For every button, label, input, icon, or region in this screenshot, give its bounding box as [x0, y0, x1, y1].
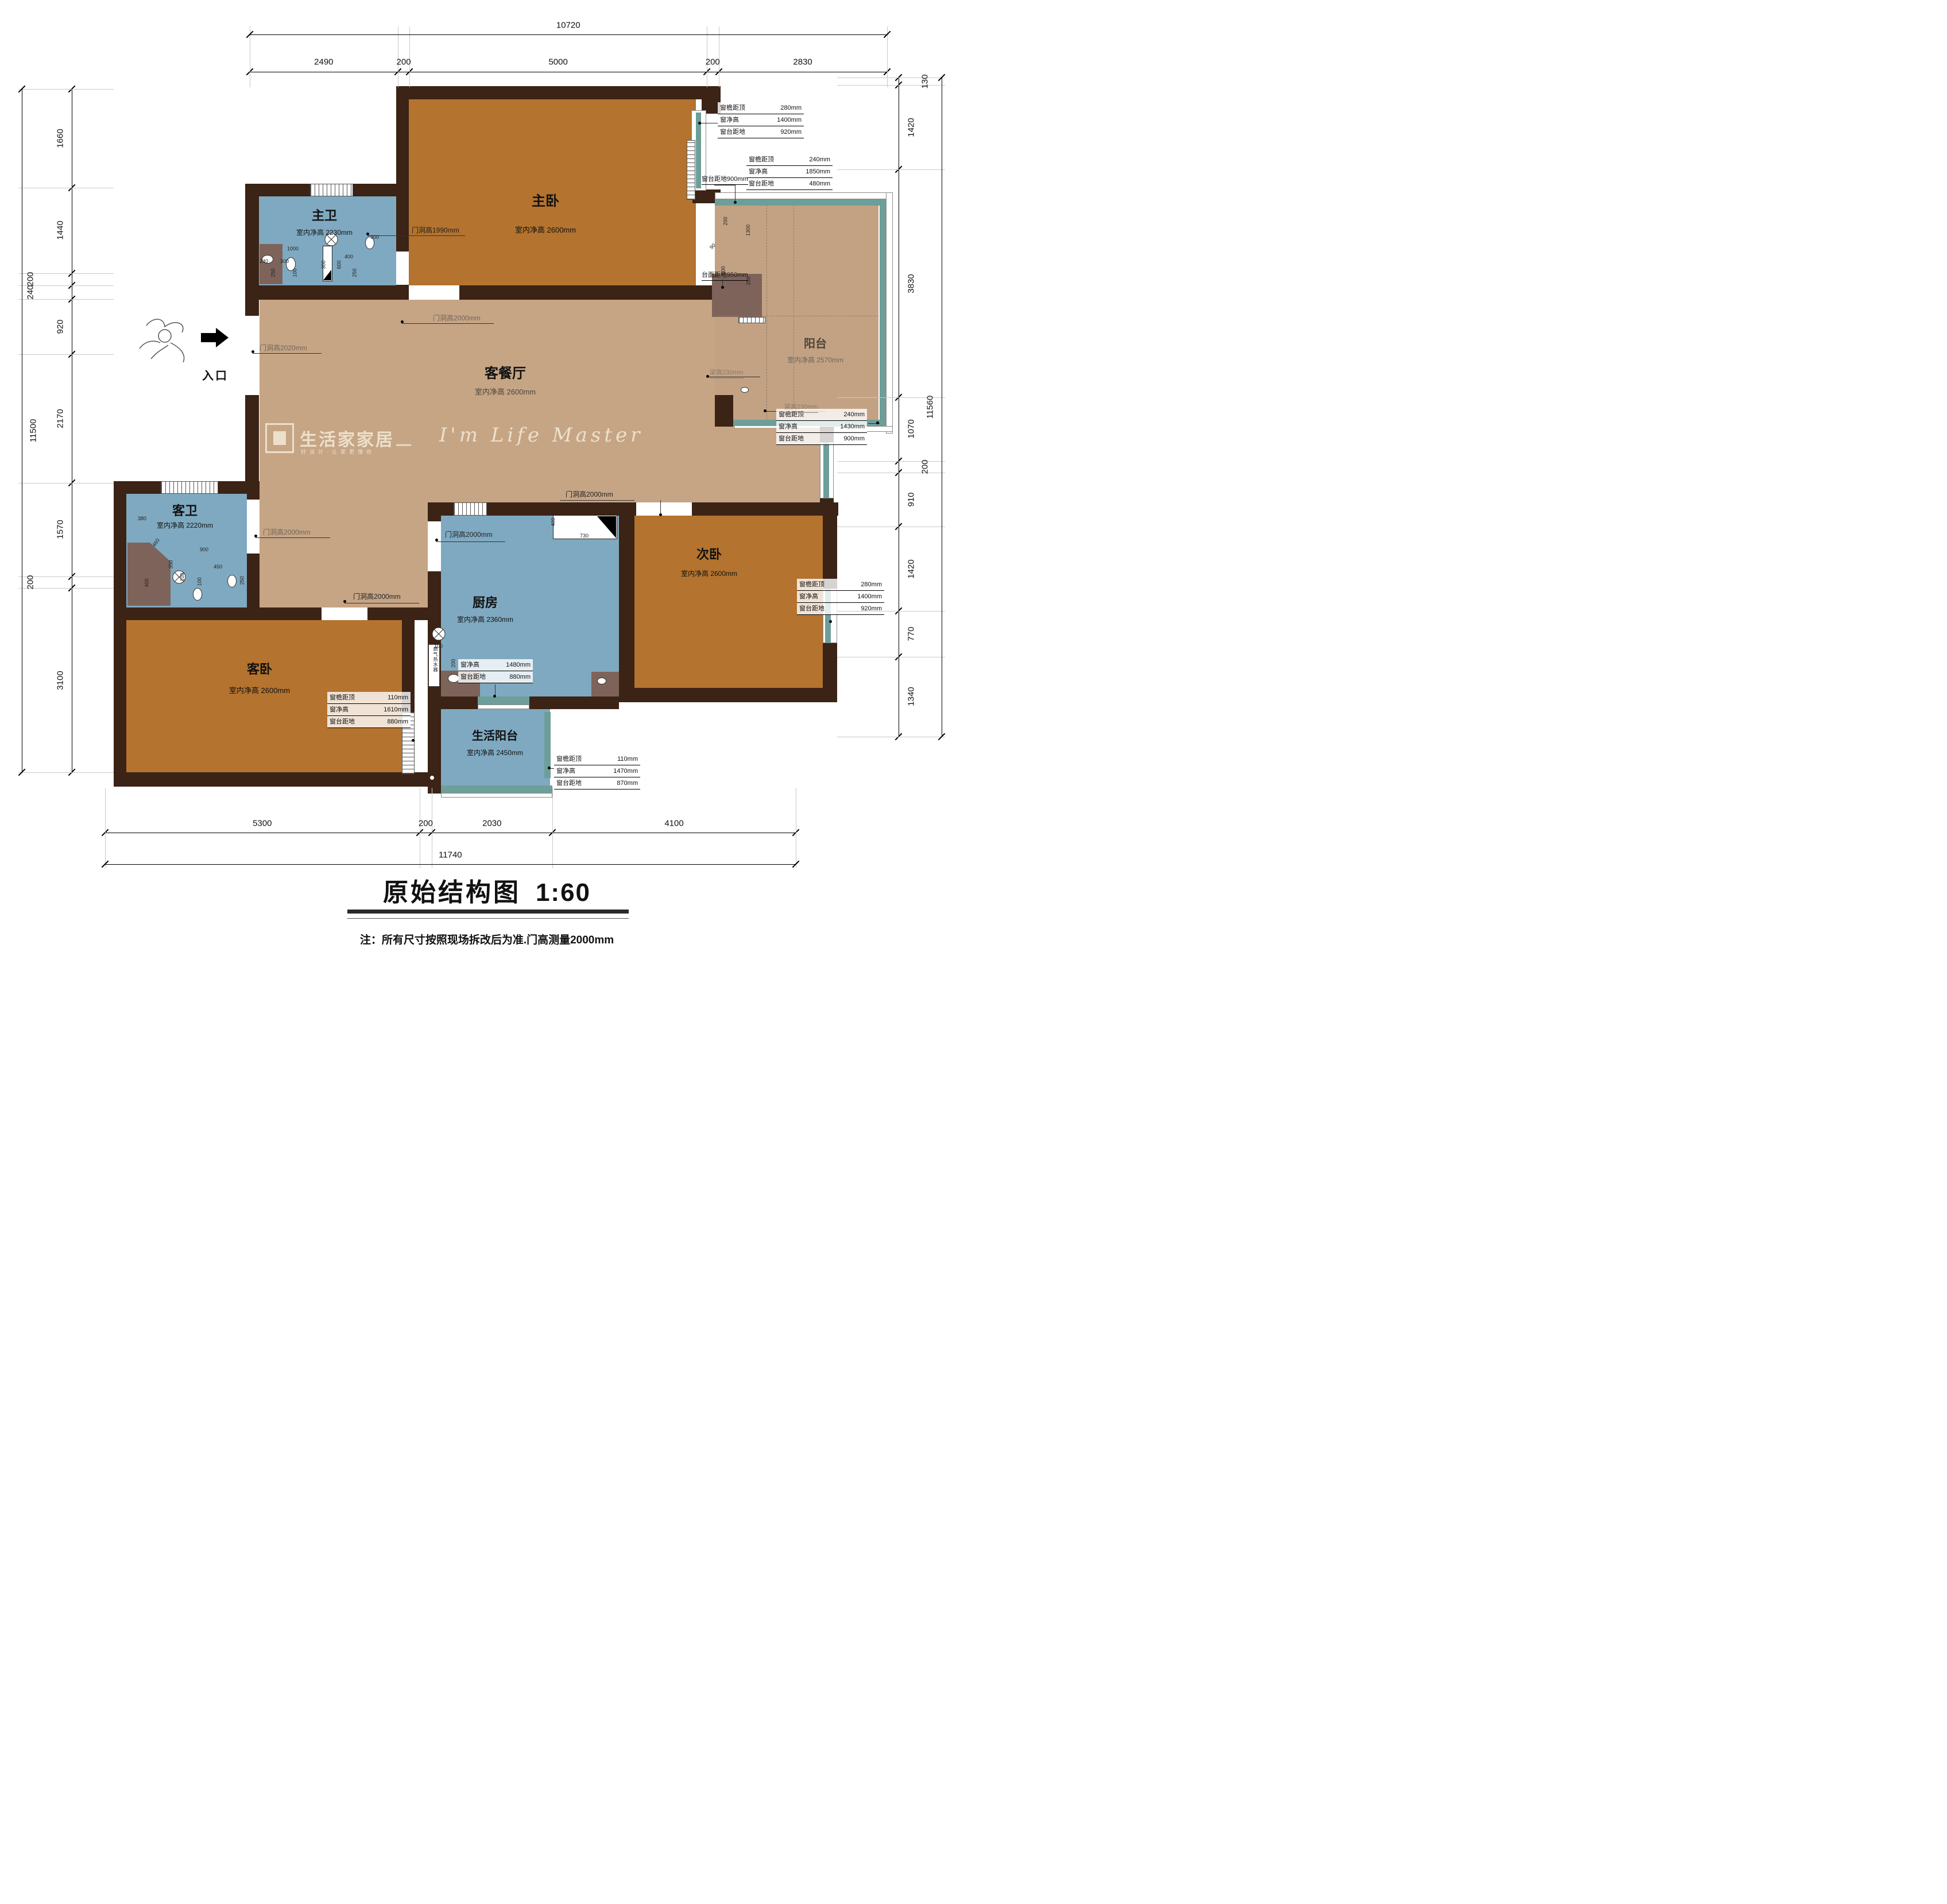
door-label-second-bedroom: 门洞高2000mm — [566, 489, 613, 499]
brand-logo-inner — [273, 431, 286, 445]
room-label-master-bedroom: 主卧 — [532, 189, 559, 210]
leader-dot — [254, 535, 257, 537]
leader-counter950: 台面距地950mm — [702, 270, 748, 281]
fixture-ellipse — [597, 678, 606, 684]
wall-segment — [529, 696, 619, 709]
extension-line — [250, 26, 250, 87]
small-dimension: 250 — [352, 268, 358, 277]
extension-line — [18, 89, 114, 90]
leader-dot — [706, 375, 709, 378]
dimension-label: 200 — [26, 575, 36, 590]
window-spec-table-t3: 窗檐距顶240mm窗净高1430mm窗台距地900mm — [776, 409, 867, 445]
window-glazing — [823, 442, 829, 498]
wall-segment — [428, 709, 441, 794]
drawing-scale: 1:60 — [536, 879, 591, 907]
leader-dot — [548, 767, 551, 769]
window-spec-row: 窗净高1430mm — [776, 421, 867, 433]
window-spec-row: 窗檐距顶110mm — [554, 753, 640, 765]
room-height-balcony: 室内净高 2570mm — [787, 355, 843, 365]
small-dimension: 400 — [551, 517, 556, 526]
window-spec-row: 窗净高1470mm — [554, 765, 640, 777]
window-spec-row: 窗台距地900mm — [776, 433, 867, 445]
small-dimension: 240 — [260, 258, 268, 264]
window-spec-table-t1: 窗檐距顶280mm窗净高1400mm窗台距地920mm — [718, 102, 804, 138]
watermark-dash: — — [396, 435, 411, 453]
window-spec-row: 窗檐距顶280mm — [797, 579, 884, 591]
counter-block — [591, 672, 619, 696]
leader-line — [714, 185, 735, 185]
small-dimension: 380 — [138, 516, 146, 521]
extension-line — [837, 527, 945, 527]
dimension-label: 4100 — [664, 819, 683, 829]
extension-line — [18, 483, 114, 483]
window-hatch-symbol — [454, 502, 487, 516]
drawing-note: 注：所有尺寸按照现场拆改后为准.门高测量2000mm — [360, 931, 614, 947]
door-label-entrance: 门洞高2020mm — [260, 343, 307, 353]
beam-dashed-line — [767, 205, 768, 420]
dimension-label: 2170 — [56, 409, 65, 428]
window-hatch-symbol — [161, 481, 218, 494]
dimension-label: 11740 — [439, 850, 462, 860]
room-label-living-dining: 客餐厅 — [485, 362, 526, 382]
leader-dot — [366, 233, 369, 235]
dimension-label: 130 — [920, 74, 930, 88]
wall-segment — [114, 772, 441, 787]
wall-segment — [619, 516, 634, 702]
leader-dot — [435, 539, 438, 541]
extension-line — [552, 788, 553, 868]
dimension-label: 1070 — [907, 420, 916, 439]
entrance-arrow-icon — [201, 333, 216, 342]
window-spec-table-t2: 窗檐距顶240mm窗净高1850mm窗台距地480mm — [746, 154, 833, 190]
small-dimension: 100 — [197, 577, 203, 586]
window-spec-table-t5: 窗净高1480mm窗台距地880mm — [458, 659, 533, 683]
window-glazing — [441, 785, 552, 793]
room-height-guest-bedroom: 室内净高 2600mm — [229, 684, 290, 695]
leader-dot — [698, 122, 701, 125]
door-opening — [247, 500, 260, 554]
dimension-label: 200 — [419, 819, 433, 829]
window-spec-row: 窗台距地480mm — [746, 178, 833, 190]
dimension-label: 11500 — [29, 419, 38, 443]
dimension-label: 5000 — [548, 57, 567, 67]
dimension-label: 1570 — [56, 520, 65, 539]
room-label-guest-bath: 客卫 — [172, 501, 198, 519]
dimension-line — [22, 89, 22, 772]
dimension-label: 200 — [706, 57, 720, 67]
dimension-line — [105, 833, 796, 833]
window-spec-table-t6: 窗檐距顶110mm窗净高1610mm窗台距地880mm — [327, 692, 411, 728]
small-dimension: 900 — [200, 547, 208, 552]
dimension-label: 910 — [907, 493, 916, 507]
window-glazing — [880, 199, 886, 427]
wall-segment — [245, 395, 259, 494]
door-label-guest-bedroom: 门洞高2000mm — [353, 591, 401, 601]
wall-segment — [820, 498, 834, 516]
entrance-arrow-head-icon — [216, 328, 229, 347]
dimension-line — [250, 34, 887, 35]
room-height-master-bedroom: 室内净高 2600mm — [515, 224, 576, 235]
window-glazing — [478, 696, 529, 705]
leader-line — [402, 323, 494, 324]
watermark-brand: 生活家家居 — [300, 425, 394, 451]
dimension-label: 3830 — [907, 274, 916, 293]
leader-dot — [876, 421, 879, 424]
floorplan-sheet: 窗檐距顶280mm窗净高1400mm窗台距地920mm窗檐距顶240mm窗净高1… — [0, 0, 974, 952]
room-label-master-bath: 主卫 — [312, 206, 337, 224]
small-dimension: 1000 — [287, 246, 299, 251]
window-spec-row: 窗檐距顶240mm — [746, 154, 833, 166]
wall-segment — [114, 481, 126, 787]
leader-dot — [764, 409, 767, 412]
extension-line — [796, 788, 796, 868]
window-spec-row: 窗檐距顶280mm — [718, 102, 804, 114]
window-spec-row: 窗台距地880mm — [327, 716, 411, 728]
dimension-label: 200 — [397, 57, 411, 67]
leader-line — [256, 537, 330, 538]
window-spec-row: 窗台距地920mm — [718, 126, 804, 138]
window-frame — [715, 192, 887, 199]
dimension-label: 10720 — [556, 21, 580, 30]
dimension-label: 1420 — [907, 559, 916, 578]
leader-dot — [412, 739, 415, 742]
second-bedroom-floor — [634, 516, 823, 688]
dimension-label: 3100 — [56, 671, 65, 690]
small-dimension: 1300 — [745, 225, 751, 236]
window-spec-row: 窗净高1480mm — [458, 659, 533, 671]
room-height-second-bedroom: 室内净高 2600mm — [681, 568, 737, 578]
leader-dot — [721, 286, 724, 289]
fixture-ellipse — [429, 775, 435, 780]
room-label-balcony: 阳台 — [804, 334, 827, 351]
watermark-tagline: 好设计·让家更懂你 — [301, 448, 375, 455]
wall-segment — [428, 516, 441, 521]
door-opening — [428, 521, 441, 571]
leader-line — [253, 353, 322, 354]
leader-line — [436, 541, 505, 542]
door-label-guest-bath: 门洞高2000mm — [263, 527, 311, 537]
dimension-label: 200 — [920, 459, 930, 474]
window-spec-row: 窗净高1610mm — [327, 704, 411, 716]
drawing-title: 原始结构图1:60 — [383, 872, 591, 908]
leader-line — [345, 603, 419, 603]
window-spec-row: 窗台距地880mm — [458, 671, 533, 683]
window-spec-table-t4: 窗檐距顶280mm窗净高1400mm窗台距地920mm — [797, 579, 884, 615]
dimension-label: 1440 — [56, 221, 65, 240]
leader-dot — [493, 695, 496, 698]
extension-line — [18, 772, 114, 773]
room-height-master-bath: 室内净高 2230mm — [296, 227, 353, 237]
leader-dot — [734, 201, 737, 204]
wall-segment — [715, 395, 733, 427]
small-dimension: 400 — [345, 254, 353, 260]
window-frame — [441, 793, 552, 798]
small-dimension: 300 — [321, 260, 327, 269]
window-spec-row: 窗台距地920mm — [797, 603, 884, 615]
small-dimension: 100 — [292, 268, 298, 277]
dimension-label: 11560 — [926, 396, 935, 419]
dimension-label: 1420 — [907, 118, 916, 137]
extension-line — [105, 788, 106, 868]
leader-dot — [829, 620, 832, 623]
leader-dot — [343, 600, 346, 603]
dimension-line — [899, 78, 899, 737]
extension-line — [18, 299, 114, 300]
window-spec-row: 窗净高1850mm — [746, 166, 833, 178]
dimension-line — [72, 89, 72, 772]
beam-dashed-line — [715, 316, 878, 317]
small-dimension: 100 — [180, 572, 185, 581]
room-height-guest-bath: 室内净高 2220mm — [157, 520, 213, 530]
leader-sill900: 窗台距地900mm — [702, 174, 748, 185]
dimension-label: 240 — [26, 285, 36, 299]
leader-line — [700, 123, 718, 123]
title-underline-thick — [347, 910, 629, 914]
small-dimension: 300 — [370, 234, 379, 240]
extension-line — [837, 611, 945, 612]
small-dimension: 250 — [239, 576, 245, 585]
wall-segment — [396, 86, 721, 99]
extension-line — [18, 188, 114, 188]
leader-beam1: 梁高230mm — [710, 367, 744, 378]
dimension-line — [250, 72, 887, 72]
dimension-line — [105, 864, 796, 865]
room-label-service-balcony: 生活阳台 — [472, 726, 518, 743]
beam-dashed-line — [793, 205, 795, 420]
small-dimension: 250 — [270, 268, 276, 277]
dimension-label: 2830 — [793, 57, 812, 67]
room-label-guest-bedroom: 客卧 — [247, 659, 272, 678]
wall-segment — [459, 285, 715, 300]
door-opening — [409, 285, 459, 300]
small-dimension: 450 — [214, 564, 222, 570]
wall-segment — [245, 285, 409, 300]
extension-line — [18, 354, 114, 355]
window-frame — [478, 705, 529, 709]
wall-segment — [428, 696, 478, 709]
plan-geometry-layer: 窗檐距顶280mm窗净高1400mm窗台距地920mm窗檐距顶240mm窗净高1… — [0, 0, 974, 952]
corridor-floor — [260, 481, 428, 620]
dimension-label: 920 — [56, 319, 65, 334]
fixture-ellipse — [227, 575, 237, 587]
window-spec-row: 窗台距地870mm — [554, 777, 640, 790]
entrance-label: 入口 — [202, 366, 229, 383]
fixture-ellipse — [193, 588, 202, 601]
wall-segment — [367, 607, 428, 620]
leader-beam2: 梁高230mm — [784, 402, 818, 413]
floor-drain-icon — [432, 627, 446, 641]
wall-segment — [114, 607, 322, 620]
wall-segment — [634, 688, 837, 702]
dimension-label: 2030 — [482, 819, 501, 829]
window-hatch-symbol — [687, 140, 695, 200]
extension-line — [837, 657, 945, 657]
window-spec-row: 窗净高1400mm — [718, 114, 804, 126]
leader-line — [550, 768, 554, 769]
leader-line — [367, 235, 465, 236]
room-height-kitchen: 室内净高 2360mm — [457, 614, 513, 624]
room-label-kitchen: 厨房 — [473, 593, 498, 611]
dimension-line — [942, 78, 942, 737]
entrance-figure-icon — [135, 313, 192, 367]
small-dimension: 200 — [451, 659, 456, 667]
small-dimension: 300 — [280, 258, 289, 264]
room-label-second-bedroom: 次卧 — [696, 544, 722, 563]
door-opening — [322, 607, 367, 620]
small-dimension: 400 — [144, 578, 150, 587]
extension-line — [837, 737, 945, 737]
dimension-label: 1660 — [56, 129, 65, 148]
window-spec-row: 窗净高1400mm — [797, 591, 884, 603]
fixture-ellipse — [448, 674, 459, 683]
dimension-label: 1340 — [907, 687, 916, 706]
small-dimension: 730 — [580, 533, 589, 539]
door-label-master-bath: 门洞高1990mm — [412, 225, 459, 235]
window-hatch-symbol — [738, 317, 765, 323]
window-glazing — [715, 199, 886, 206]
water-heater-label: 燃气热水器 — [429, 647, 439, 672]
leader-dot — [251, 350, 254, 353]
window-spec-row: 窗檐距顶110mm — [327, 692, 411, 704]
dimension-label: 2490 — [314, 57, 333, 67]
door-opening — [636, 502, 692, 516]
watermark-script: I'm Life Master — [439, 424, 643, 447]
extension-line — [887, 26, 888, 87]
room-height-service-balcony: 室内净高 2450mm — [467, 748, 523, 757]
small-dimension: 200 — [723, 216, 729, 225]
title-underline-thin — [347, 918, 629, 919]
room-height-living-dining: 室内净高 2600mm — [475, 386, 536, 397]
wall-segment — [114, 481, 161, 494]
window-spec-table-t7: 窗檐距顶110mm窗净高1470mm窗台距地870mm — [554, 753, 640, 790]
fixture-ellipse — [741, 387, 749, 393]
living-floor — [260, 300, 735, 504]
small-dimension: 600 — [336, 260, 342, 269]
door-opening — [396, 251, 409, 285]
brand-logo-icon — [265, 423, 294, 453]
dimension-label: 200 — [26, 272, 36, 287]
leader-dot — [401, 320, 404, 323]
dimension-label: 5300 — [253, 819, 272, 829]
extension-line — [837, 169, 945, 170]
leader-line — [560, 500, 634, 501]
door-label-master-bedroom: 门洞高2000mm — [433, 313, 481, 323]
dimension-label: 770 — [907, 627, 916, 641]
wall-segment — [692, 502, 838, 516]
door-label-kitchen: 门洞高2000mm — [445, 529, 493, 539]
wall-segment — [247, 481, 260, 501]
small-dimension: 350 — [168, 560, 174, 568]
counter-block — [260, 244, 282, 284]
window-hatch-symbol — [310, 184, 353, 196]
leader-dot — [659, 513, 662, 516]
